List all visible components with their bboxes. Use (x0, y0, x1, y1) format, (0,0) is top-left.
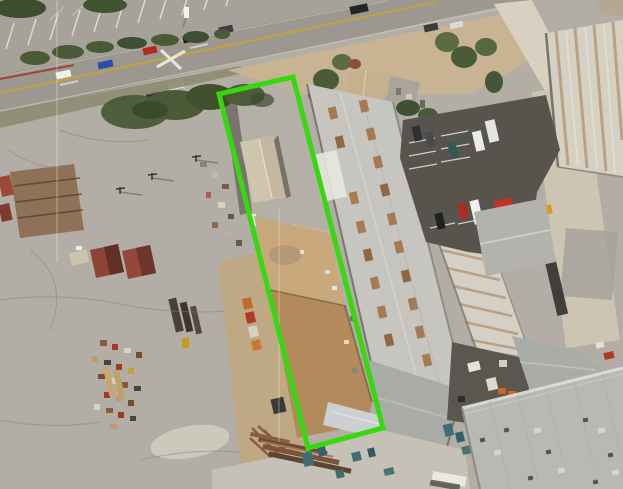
white-monument (184, 7, 189, 18)
forklift (182, 338, 189, 348)
roof-stain (269, 245, 301, 265)
asphalt-patch (560, 228, 618, 300)
aerial-map-view[interactable] (0, 0, 623, 489)
red-flowering-bush (349, 59, 361, 69)
map-canvas[interactable] (0, 0, 623, 489)
